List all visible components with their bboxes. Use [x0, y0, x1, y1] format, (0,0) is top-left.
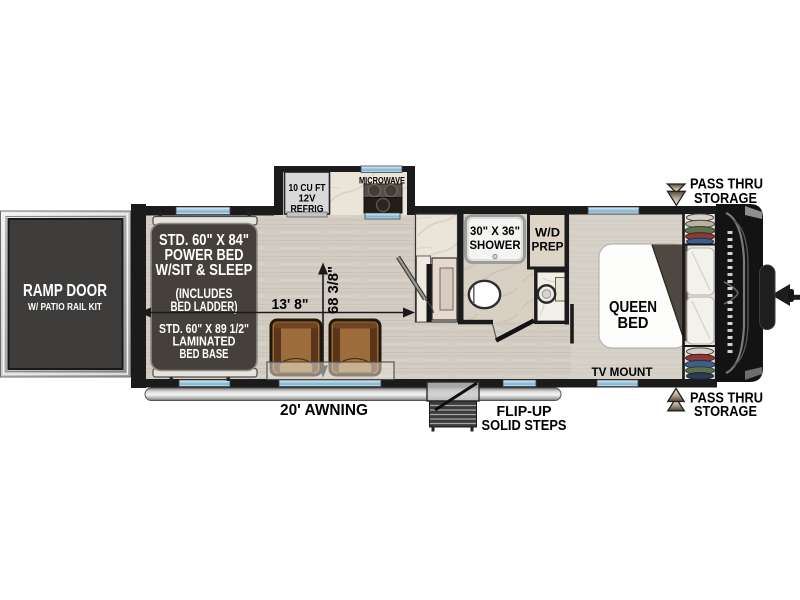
svg-text:STORAGE: STORAGE [694, 404, 757, 420]
svg-text:SOLID STEPS: SOLID STEPS [482, 418, 567, 434]
svg-text:30" X 36": 30" X 36" [470, 224, 520, 238]
svg-text:13' 8": 13' 8" [272, 296, 309, 313]
svg-text:BED BASE: BED BASE [180, 347, 229, 361]
svg-text:QUEEN: QUEEN [609, 299, 657, 316]
svg-text:PREP: PREP [532, 242, 564, 254]
svg-text:SHOWER: SHOWER [470, 238, 521, 252]
svg-text:TV MOUNT: TV MOUNT [592, 365, 654, 379]
svg-text:REFRIG: REFRIG [291, 203, 324, 215]
svg-text:STORAGE: STORAGE [694, 191, 757, 207]
svg-text:68 3/8": 68 3/8" [325, 266, 342, 314]
svg-text:20' AWNING: 20' AWNING [280, 402, 368, 419]
svg-text:W/ PATIO RAIL KIT: W/ PATIO RAIL KIT [28, 302, 102, 313]
svg-text:BED: BED [618, 315, 649, 332]
svg-text:W/SIT & SLEEP: W/SIT & SLEEP [156, 262, 253, 279]
svg-text:RAMP DOOR: RAMP DOOR [23, 280, 107, 300]
svg-text:W/D: W/D [535, 228, 560, 240]
